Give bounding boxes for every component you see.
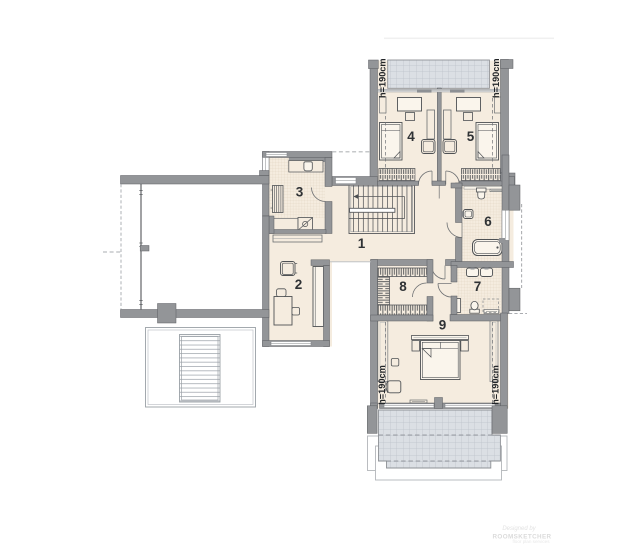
svg-text:7: 7 [474, 279, 482, 294]
svg-text:h=190cm: h=190cm [377, 365, 387, 405]
svg-text:9: 9 [439, 318, 447, 333]
svg-text:4: 4 [407, 129, 415, 144]
svg-text:8: 8 [399, 279, 407, 294]
svg-text:Designed by: Designed by [502, 526, 536, 532]
svg-text:3: 3 [296, 185, 304, 200]
svg-text:2: 2 [295, 277, 303, 292]
svg-text:5: 5 [467, 129, 475, 144]
svg-text:floor plan services: floor plan services [512, 539, 550, 544]
svg-text:h=190cm: h=190cm [377, 58, 387, 98]
svg-text:h=190cm: h=190cm [491, 365, 501, 405]
svg-text:h=190cm: h=190cm [491, 58, 501, 98]
svg-text:6: 6 [484, 214, 492, 229]
svg-text:1: 1 [358, 236, 366, 251]
